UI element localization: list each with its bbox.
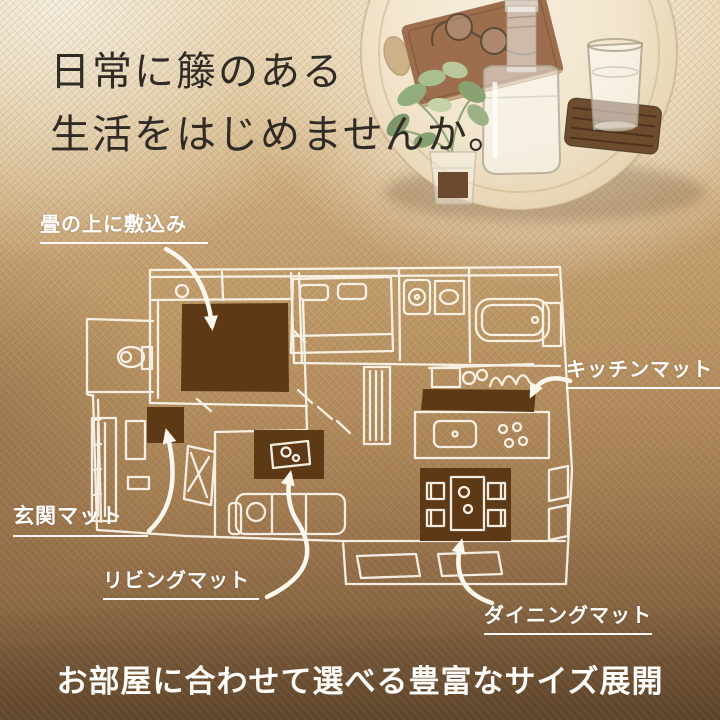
porch-steps [357, 552, 502, 578]
bed-icon [291, 277, 393, 353]
window-right [549, 466, 568, 540]
kitchen-shelf [429, 364, 533, 387]
fridge-icon [543, 303, 561, 346]
headline-line-2: 生活をはじめませんか。 [50, 103, 510, 166]
headline: 日常に籐のある 生活をはじめませんか。 [50, 40, 510, 166]
sofa-icon [229, 494, 345, 534]
entry-mirror [126, 421, 145, 459]
kitchen-mat [421, 389, 536, 412]
kitchen-counter [415, 412, 549, 458]
bathtub-icon [476, 299, 549, 341]
wall-top [150, 267, 560, 270]
washing-machine-icon [404, 280, 430, 314]
arrow-to-entrance-mat [149, 433, 173, 531]
hero-banner: 日常に籐のある 生活をはじめませんか。 畳の上に敷込み キッチンマット 玄関マッ… [0, 0, 720, 720]
front-door-icon [184, 446, 215, 505]
shelf-divider [364, 367, 390, 444]
headline-line-1: 日常に籐のある [50, 40, 510, 103]
arrow-to-kitchen-mat [532, 378, 570, 394]
label-living-mat: リビングマット [103, 564, 259, 600]
label-entrance-mat: 玄関マット [13, 500, 148, 537]
drinking-glass [588, 39, 642, 131]
label-tatami-mat: 畳の上に敷込み [40, 208, 208, 244]
tatami-mat [181, 303, 289, 392]
entrance-mat [147, 407, 184, 443]
tatami-room-wall [150, 270, 158, 403]
label-dining-mat: ダイニングマット [484, 599, 652, 635]
label-kitchen-mat: キッチンマット [566, 353, 720, 389]
washbasin-icon [435, 281, 464, 314]
mat-areas [147, 303, 536, 541]
footer-caption: お部屋に合わせて選べる豊富なサイズ展開 [0, 656, 720, 701]
